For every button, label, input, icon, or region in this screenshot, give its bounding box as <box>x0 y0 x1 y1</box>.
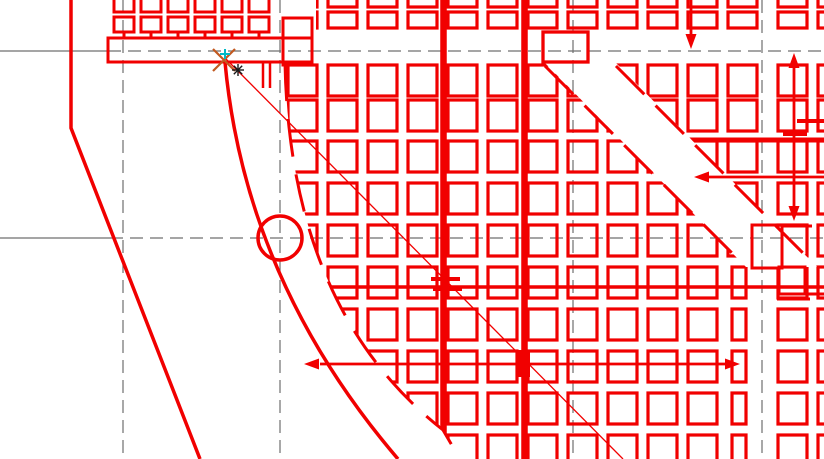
splice-hash-1 <box>433 287 462 291</box>
cad-drawing <box>0 0 824 459</box>
cad-viewport[interactable] <box>0 0 824 459</box>
